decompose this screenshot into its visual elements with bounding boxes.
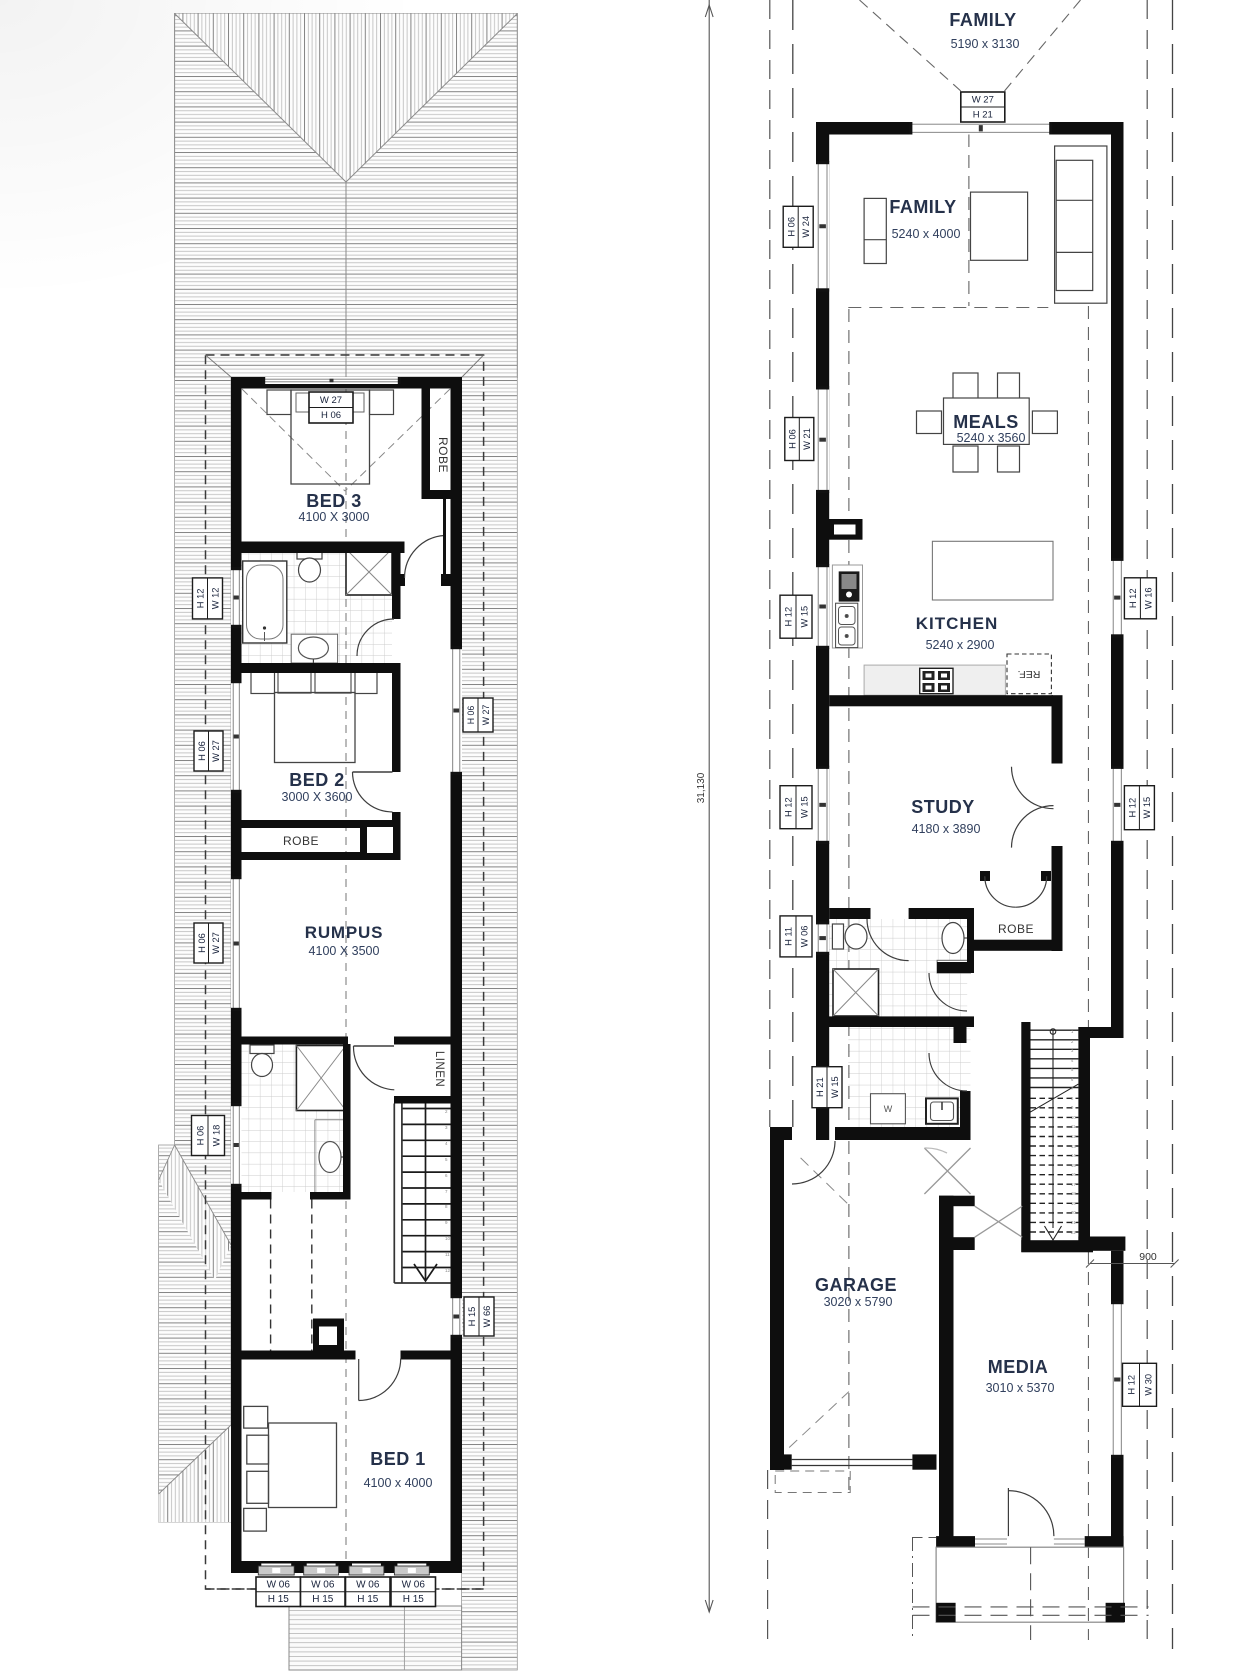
svg-text:H 12: H 12: [1127, 1375, 1137, 1395]
svg-text:W 15: W 15: [830, 1076, 840, 1098]
svg-text:W 30: W 30: [1143, 1374, 1153, 1396]
svg-text:W 16: W 16: [1144, 587, 1154, 609]
svg-text:4100 x 4000: 4100 x 4000: [364, 1476, 433, 1490]
svg-text:W 27: W 27: [211, 740, 221, 762]
svg-text:5240 x 3560: 5240 x 3560: [957, 431, 1026, 445]
svg-text:W 06: W 06: [356, 1579, 380, 1590]
svg-text:10: 10: [1071, 1115, 1076, 1120]
svg-text:11: 11: [445, 1252, 450, 1257]
svg-text:H 11: H 11: [784, 927, 794, 946]
svg-text:ROBE: ROBE: [998, 922, 1034, 936]
svg-text:H 06: H 06: [786, 217, 796, 237]
svg-text:FAMILY: FAMILY: [949, 10, 1016, 30]
svg-text:21: 21: [1071, 1220, 1076, 1225]
svg-text:W 27: W 27: [320, 395, 342, 406]
svg-text:W 06: W 06: [267, 1579, 291, 1590]
svg-text:4180 x 3890: 4180 x 3890: [912, 822, 981, 836]
svg-text:11: 11: [1071, 1124, 1076, 1129]
svg-text:W 21: W 21: [802, 428, 812, 450]
svg-text:12: 12: [445, 1268, 451, 1273]
svg-text:H 06: H 06: [197, 933, 207, 953]
svg-text:20: 20: [1071, 1210, 1076, 1215]
svg-text:W 06: W 06: [799, 926, 809, 948]
svg-text:3020 x 5790: 3020 x 5790: [824, 1295, 893, 1309]
svg-text:31,130: 31,130: [696, 772, 707, 803]
svg-text:W 27: W 27: [481, 705, 491, 726]
svg-text:BED 1: BED 1: [370, 1449, 426, 1469]
svg-text:H 21: H 21: [973, 109, 993, 120]
svg-text:W 27: W 27: [211, 932, 221, 954]
svg-text:KITCHEN: KITCHEN: [916, 614, 999, 633]
svg-text:12: 12: [1071, 1134, 1076, 1139]
svg-text:18: 18: [1071, 1191, 1076, 1196]
svg-text:W 12: W 12: [210, 588, 220, 610]
svg-text:H 06: H 06: [466, 706, 476, 725]
svg-text:H 12: H 12: [196, 589, 206, 609]
svg-text:H 21: H 21: [815, 1077, 825, 1097]
svg-text:5190 x 3130: 5190 x 3130: [951, 37, 1020, 51]
svg-text:15: 15: [1071, 1163, 1076, 1168]
svg-text:REF.: REF.: [1018, 668, 1041, 680]
svg-text:W 06: W 06: [402, 1579, 426, 1590]
svg-text:H 15: H 15: [268, 1594, 290, 1605]
svg-text:LINEN: LINEN: [433, 1051, 445, 1087]
svg-text:H 06: H 06: [788, 429, 798, 449]
svg-text:STUDY: STUDY: [911, 797, 975, 817]
svg-text:H 06: H 06: [195, 1126, 205, 1146]
svg-text:900: 900: [1139, 1251, 1157, 1263]
svg-text:W 66: W 66: [482, 1306, 492, 1328]
svg-text:W 15: W 15: [799, 606, 809, 628]
svg-text:10: 10: [445, 1236, 451, 1241]
svg-text:W 15: W 15: [799, 796, 809, 818]
svg-text:14: 14: [1071, 1153, 1076, 1158]
svg-text:W 18: W 18: [212, 1125, 222, 1147]
svg-text:H 15: H 15: [467, 1307, 477, 1327]
svg-text:4100 X 3500: 4100 X 3500: [309, 944, 380, 958]
svg-text:ROBE: ROBE: [436, 437, 450, 473]
svg-text:4100 X 3000: 4100 X 3000: [299, 510, 370, 524]
svg-text:H 12: H 12: [784, 607, 794, 627]
svg-text:H 12: H 12: [784, 797, 794, 817]
svg-text:W 27: W 27: [972, 95, 994, 106]
svg-text:H 06: H 06: [197, 741, 207, 761]
svg-text:MEDIA: MEDIA: [988, 1357, 1049, 1377]
svg-text:H 15: H 15: [312, 1594, 334, 1605]
svg-text:MEALS: MEALS: [953, 412, 1019, 432]
svg-text:H 12: H 12: [1128, 798, 1138, 818]
svg-text:19: 19: [1071, 1201, 1076, 1206]
svg-text:3010 x 5370: 3010 x 5370: [986, 1381, 1055, 1395]
svg-text:13: 13: [1071, 1144, 1076, 1149]
svg-text:17: 17: [1071, 1182, 1076, 1187]
svg-text:BED 3: BED 3: [306, 491, 362, 511]
svg-text:ROBE: ROBE: [283, 834, 319, 848]
svg-text:W 15: W 15: [1142, 797, 1152, 819]
svg-text:16: 16: [1071, 1172, 1076, 1177]
svg-text:BED 2: BED 2: [289, 770, 345, 790]
svg-text:W: W: [884, 1104, 893, 1114]
svg-text:W 06: W 06: [311, 1579, 335, 1590]
svg-text:W 24: W 24: [801, 216, 811, 238]
svg-text:H 15: H 15: [357, 1594, 379, 1605]
svg-text:5240 x 4000: 5240 x 4000: [892, 227, 961, 241]
svg-text:FAMILY: FAMILY: [889, 197, 956, 217]
svg-text:5240 x 2900: 5240 x 2900: [926, 638, 995, 652]
svg-text:3000 X 3600: 3000 X 3600: [282, 790, 353, 804]
svg-text:RUMPUS: RUMPUS: [305, 923, 383, 942]
svg-text:GARAGE: GARAGE: [815, 1275, 897, 1295]
svg-text:H 12: H 12: [1128, 588, 1138, 608]
svg-text:22: 22: [1071, 1230, 1076, 1235]
svg-text:H 15: H 15: [403, 1594, 425, 1605]
svg-text:H 06: H 06: [321, 410, 341, 421]
